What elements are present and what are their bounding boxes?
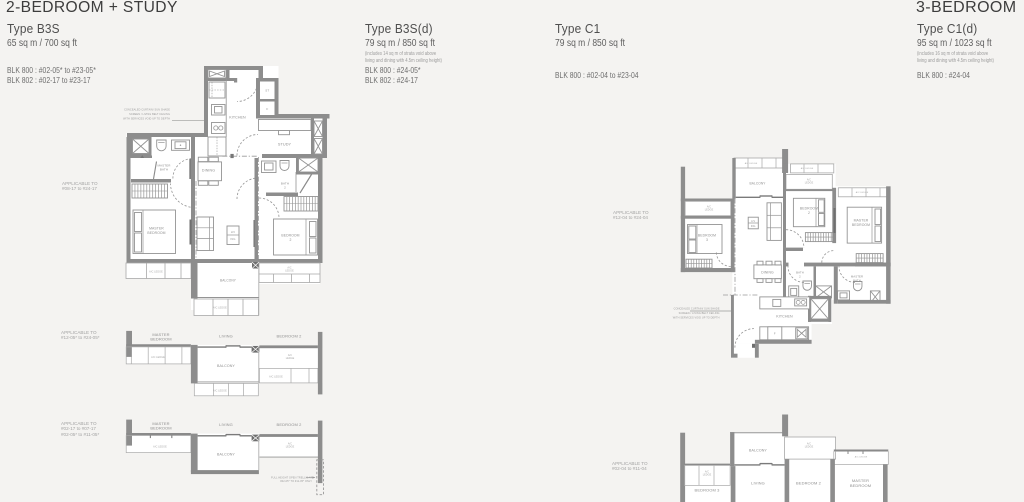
svg-text:BALCONY: BALCONY xyxy=(749,449,767,453)
svg-text:LIV: LIV xyxy=(231,230,235,234)
svg-text:LEDGE: LEDGE xyxy=(805,446,814,449)
svg-text:BALCONY: BALCONY xyxy=(750,182,767,186)
svg-text:A/C LEDGE: A/C LEDGE xyxy=(855,456,868,459)
svg-text:BALCONY: BALCONY xyxy=(220,279,237,283)
svg-text:LEDGE: LEDGE xyxy=(286,446,295,449)
svg-text:A/C LEDGE: A/C LEDGE xyxy=(269,375,283,378)
svg-text:#02-05* TO #11-05* ONLY: #02-05* TO #11-05* ONLY xyxy=(280,480,312,483)
svg-text:A/C LEDGE: A/C LEDGE xyxy=(213,307,227,310)
svg-text:LEDGE: LEDGE xyxy=(286,357,295,360)
svg-text:3: 3 xyxy=(706,238,708,242)
svg-text:CONCEALED CURTAIN/ SUN SHADE: CONCEALED CURTAIN/ SUN SHADE xyxy=(124,109,170,112)
svg-text:STUDY: STUDY xyxy=(278,143,292,147)
svg-text:BEDROOM: BEDROOM xyxy=(800,207,818,211)
svg-text:LIVING: LIVING xyxy=(751,481,765,486)
svg-text:DINING: DINING xyxy=(761,271,774,275)
svg-text:BEDROOM: BEDROOM xyxy=(281,234,299,238)
svg-text:2: 2 xyxy=(808,211,810,215)
svg-text:LIV: LIV xyxy=(751,220,755,223)
svg-text:BEDROOM: BEDROOM xyxy=(698,234,716,238)
svg-text:2: 2 xyxy=(284,186,286,190)
svg-text:A/C LEDGE: A/C LEDGE xyxy=(149,271,163,274)
svg-text:A/C LEDGE: A/C LEDGE xyxy=(745,162,758,165)
svg-text:KITCHEN: KITCHEN xyxy=(776,315,793,319)
svg-text:BATH: BATH xyxy=(160,168,168,172)
svg-text:2: 2 xyxy=(290,238,292,242)
svg-text:F: F xyxy=(774,332,776,336)
svg-text:CONCEALED CURTAIN/ SUN SHADE: CONCEALED CURTAIN/ SUN SHADE xyxy=(674,308,720,311)
svg-text:BEDROOM: BEDROOM xyxy=(850,483,871,488)
svg-text:BALCONY: BALCONY xyxy=(217,364,235,368)
svg-text:LIVING: LIVING xyxy=(219,422,233,427)
svg-text:F: F xyxy=(266,107,268,111)
svg-text:A/C LEDGE: A/C LEDGE xyxy=(801,167,814,170)
svg-text:SCREEN / LIVING BELT CEILING: SCREEN / LIVING BELT CEILING xyxy=(129,113,170,116)
svg-text:FULL HEIGHT OPEN TRELLIS AT: FULL HEIGHT OPEN TRELLIS AT xyxy=(271,477,312,480)
svg-text:LEDGE: LEDGE xyxy=(285,270,294,273)
svg-text:A/C LEDGE: A/C LEDGE xyxy=(153,446,167,449)
svg-text:ST: ST xyxy=(265,89,269,93)
svg-text:LIVING: LIVING xyxy=(219,333,233,338)
svg-text:LEDGE: LEDGE xyxy=(705,209,714,212)
svg-text:SCREEN / LIVING BELT CEILING: SCREEN / LIVING BELT CEILING xyxy=(679,312,720,315)
svg-text:BEDROOM: BEDROOM xyxy=(150,337,171,342)
svg-text:DINING: DINING xyxy=(202,169,215,173)
svg-text:BEDROOM 2: BEDROOM 2 xyxy=(277,422,303,427)
svg-text:WITH SERVICES VOID UP TO DEPTH: WITH SERVICES VOID UP TO DEPTH xyxy=(673,317,720,320)
svg-text:LEDGE: LEDGE xyxy=(703,474,712,477)
svg-text:BALCONY: BALCONY xyxy=(217,453,235,457)
svg-text:BEDROOM: BEDROOM xyxy=(147,231,165,235)
svg-text:A/C LEDGE: A/C LEDGE xyxy=(213,389,227,392)
svg-text:BEDROOM: BEDROOM xyxy=(852,223,870,227)
svg-text:A/C LEDGE: A/C LEDGE xyxy=(151,356,165,359)
svg-text:KITCHEN: KITCHEN xyxy=(229,116,246,120)
svg-text:MASTER: MASTER xyxy=(149,227,164,231)
svg-text:MASTER: MASTER xyxy=(854,219,869,223)
svg-text:BEDROOM 3: BEDROOM 3 xyxy=(695,488,721,493)
svg-text:BEDROOM: BEDROOM xyxy=(150,425,171,430)
svg-text:WITH SERVICES VOID UP TO DEPTH: WITH SERVICES VOID UP TO DEPTH xyxy=(123,118,170,121)
svg-text:ING: ING xyxy=(751,225,756,228)
svg-text:LEDGE: LEDGE xyxy=(805,182,814,185)
svg-text:BEDROOM 2: BEDROOM 2 xyxy=(796,481,822,486)
svg-text:A/C LEDGE: A/C LEDGE xyxy=(856,191,869,194)
svg-text:BEDROOM 2: BEDROOM 2 xyxy=(277,333,303,338)
svg-text:ING: ING xyxy=(231,237,236,241)
svg-text:BATH: BATH xyxy=(853,278,861,282)
